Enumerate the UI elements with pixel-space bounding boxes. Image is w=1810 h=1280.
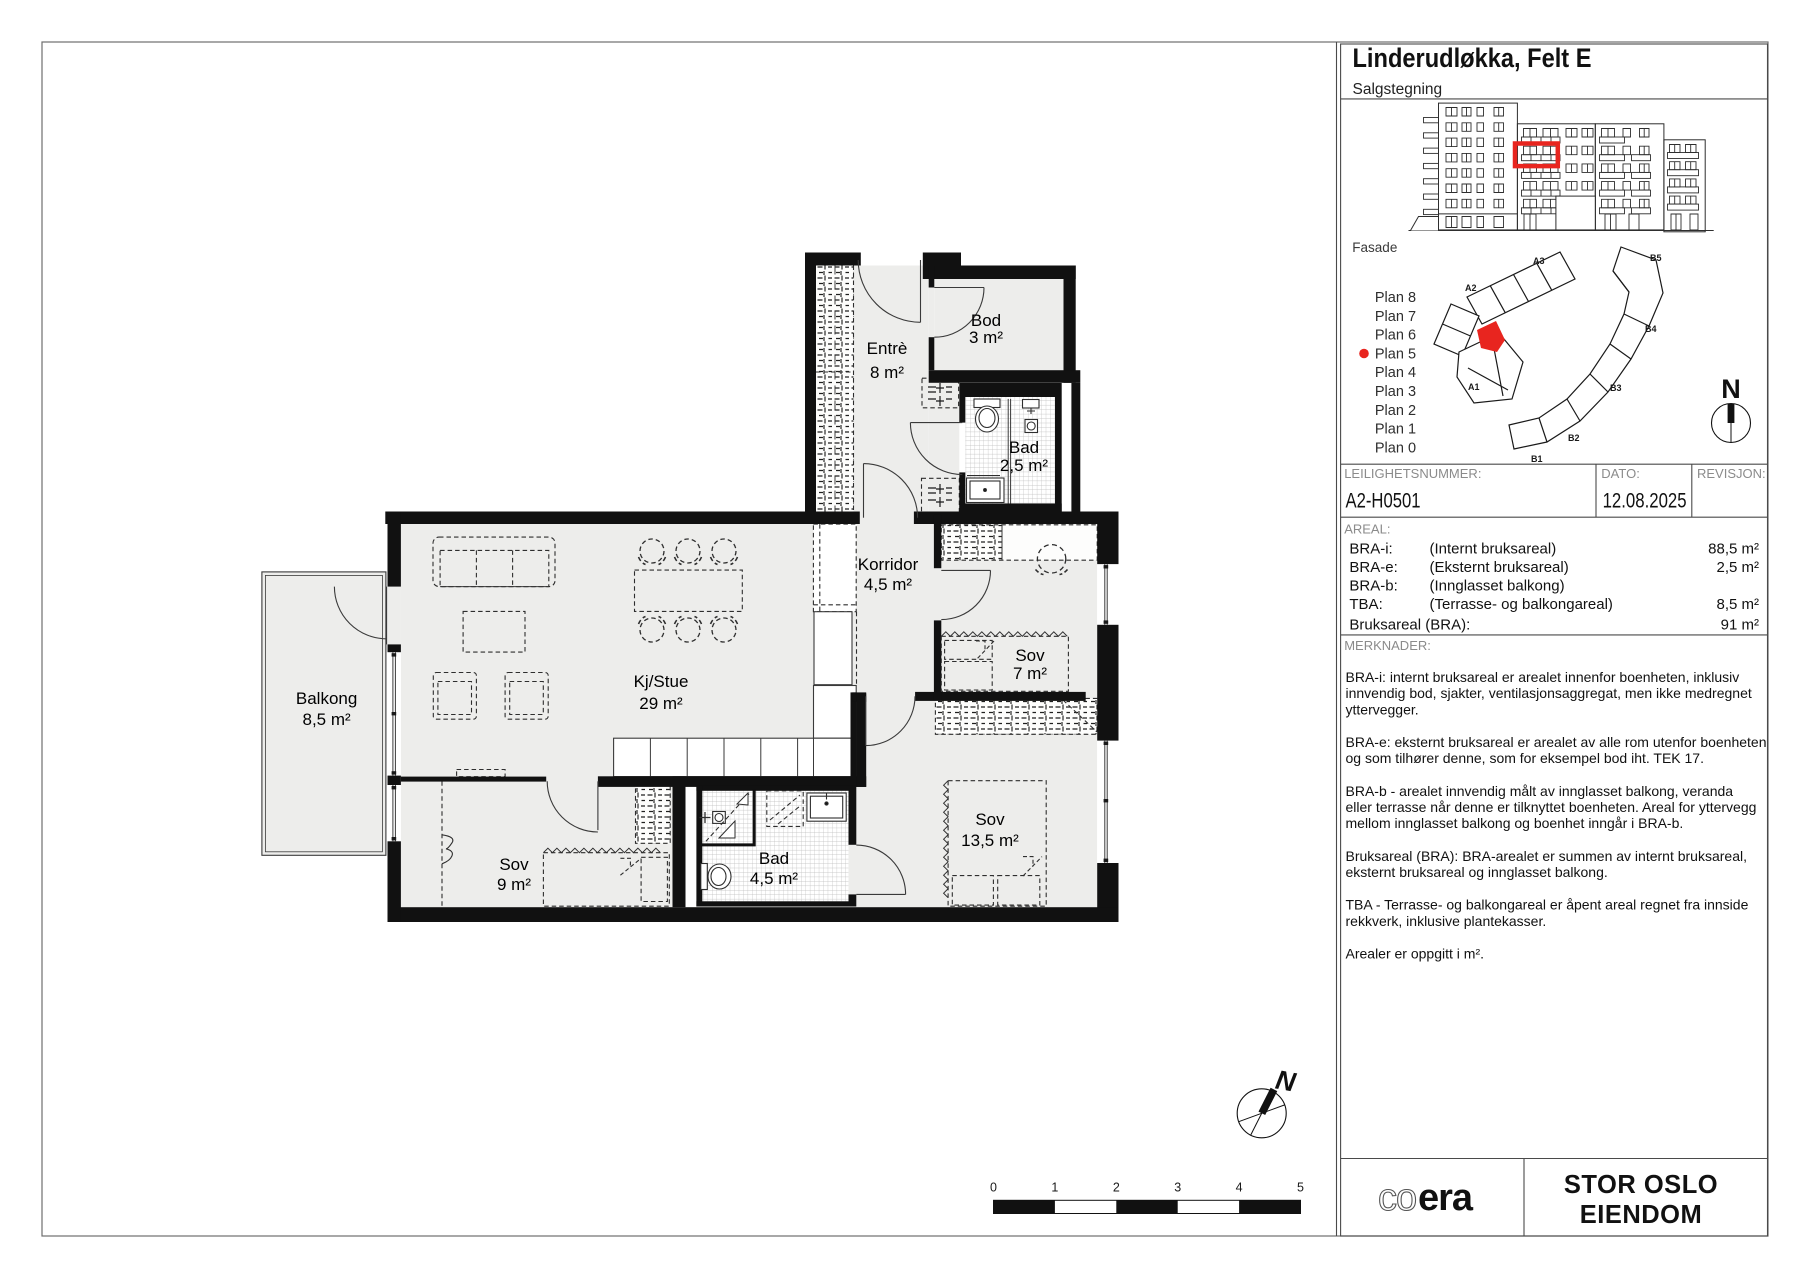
svg-text:Bad: Bad bbox=[759, 849, 789, 868]
svg-text:Plan 5: Plan 5 bbox=[1375, 346, 1416, 362]
svg-text:A2-H0501: A2-H0501 bbox=[1346, 490, 1421, 513]
svg-text:(Eksternt bruksareal): (Eksternt bruksareal) bbox=[1430, 559, 1569, 576]
svg-text:A2: A2 bbox=[1465, 283, 1477, 293]
svg-text:2,5 m²: 2,5 m² bbox=[1000, 456, 1049, 475]
svg-text:Fasade: Fasade bbox=[1352, 240, 1397, 255]
svg-text:A3: A3 bbox=[1533, 256, 1545, 266]
svg-text:1: 1 bbox=[1051, 1181, 1058, 1195]
svg-text:Bruksareal (BRA):: Bruksareal (BRA): bbox=[1349, 616, 1470, 633]
svg-text:BRA-i:: BRA-i: bbox=[1349, 541, 1392, 558]
svg-text:(Internt bruksareal): (Internt bruksareal) bbox=[1430, 541, 1557, 558]
svg-text:A1: A1 bbox=[1468, 382, 1480, 392]
svg-text:3 m²: 3 m² bbox=[969, 328, 1003, 347]
svg-text:REVISJON:: REVISJON: bbox=[1697, 466, 1766, 481]
svg-text:era: era bbox=[1418, 1177, 1474, 1219]
svg-text:B5: B5 bbox=[1650, 253, 1662, 263]
svg-text:N: N bbox=[1273, 1065, 1298, 1098]
svg-text:B3: B3 bbox=[1610, 383, 1622, 393]
svg-text:5: 5 bbox=[1297, 1181, 1304, 1195]
svg-text:Kj/Stue: Kj/Stue bbox=[634, 672, 689, 691]
svg-text:BRA-i: internt bruksareal er a: BRA-i: internt bruksareal er arealet inn… bbox=[1346, 669, 1740, 685]
svg-text:rekkverk, inklusive plantekass: rekkverk, inklusive plantekasser. bbox=[1346, 913, 1547, 929]
svg-text:Bruksareal (BRA): BRA-arealet: Bruksareal (BRA): BRA-arealet er summen … bbox=[1346, 848, 1747, 864]
svg-text:Plan 8: Plan 8 bbox=[1375, 290, 1416, 306]
svg-text:91 m²: 91 m² bbox=[1721, 616, 1759, 633]
svg-text:2,5 m²: 2,5 m² bbox=[1716, 559, 1759, 576]
svg-text:Sov: Sov bbox=[499, 855, 529, 874]
svg-text:TBA - Terrasse- og balkongarea: TBA - Terrasse- og balkongareal er åpent… bbox=[1346, 897, 1749, 913]
svg-text:Bad: Bad bbox=[1009, 438, 1039, 457]
svg-text:N: N bbox=[1721, 374, 1741, 404]
svg-text:3: 3 bbox=[1174, 1181, 1181, 1195]
svg-text:yttervegger.: yttervegger. bbox=[1346, 701, 1419, 717]
svg-text:Plan 4: Plan 4 bbox=[1375, 365, 1416, 381]
svg-text:BRA-e: eksternt bruksareal er: BRA-e: eksternt bruksareal er arealet av… bbox=[1346, 734, 1767, 750]
svg-text:8 m²: 8 m² bbox=[870, 363, 904, 382]
svg-text:B2: B2 bbox=[1568, 433, 1580, 443]
svg-text:mellom innglasset balkong og b: mellom innglasset balkong og boenhet inn… bbox=[1346, 815, 1684, 831]
svg-text:MERKNADER:: MERKNADER: bbox=[1344, 638, 1431, 653]
svg-text:Korridor: Korridor bbox=[858, 555, 919, 574]
svg-text:BRA-e:: BRA-e: bbox=[1349, 559, 1397, 576]
svg-text:BRA-b:: BRA-b: bbox=[1349, 578, 1397, 595]
svg-text:Plan 1: Plan 1 bbox=[1375, 422, 1416, 438]
svg-text:Sov: Sov bbox=[975, 810, 1005, 829]
svg-text:TBA:: TBA: bbox=[1349, 596, 1382, 613]
svg-text:Balkong: Balkong bbox=[296, 689, 357, 708]
svg-text:EIENDOM: EIENDOM bbox=[1580, 1201, 1703, 1229]
svg-text:Salgstegning: Salgstegning bbox=[1353, 81, 1443, 98]
svg-text:88,5 m²: 88,5 m² bbox=[1708, 541, 1759, 558]
svg-text:Sov: Sov bbox=[1015, 646, 1045, 665]
svg-text:8,5 m²: 8,5 m² bbox=[1716, 596, 1759, 613]
svg-text:(Innglasset balkong): (Innglasset balkong) bbox=[1430, 578, 1565, 595]
svg-text:eller terrasse når denne er ti: eller terrasse når denne er tilknyttet b… bbox=[1346, 799, 1757, 815]
svg-text:4,5 m²: 4,5 m² bbox=[750, 869, 799, 888]
svg-text:Plan 0: Plan 0 bbox=[1375, 440, 1416, 456]
svg-text:Plan 6: Plan 6 bbox=[1375, 328, 1416, 344]
svg-text:9 m²: 9 m² bbox=[497, 875, 531, 894]
svg-text:13,5 m²: 13,5 m² bbox=[961, 831, 1019, 850]
svg-text:8,5 m²: 8,5 m² bbox=[303, 710, 352, 729]
svg-text:co: co bbox=[1378, 1177, 1416, 1219]
svg-text:4,5 m²: 4,5 m² bbox=[864, 575, 913, 594]
svg-text:STOR OSLO: STOR OSLO bbox=[1564, 1171, 1718, 1199]
svg-text:7 m²: 7 m² bbox=[1013, 664, 1047, 683]
svg-text:Arealer er oppgitt i m².: Arealer er oppgitt i m². bbox=[1346, 945, 1485, 961]
svg-text:Entrè: Entrè bbox=[867, 339, 908, 358]
svg-text:Linderudløkka, Felt E: Linderudløkka, Felt E bbox=[1353, 43, 1592, 73]
svg-text:BRA-b - arealet innvendig målt: BRA-b - arealet innvendig målt av inngla… bbox=[1346, 783, 1734, 799]
svg-text:og som tilhører denne, som for: og som tilhører denne, som for eksempel … bbox=[1346, 750, 1704, 766]
svg-text:AREAL:: AREAL: bbox=[1344, 522, 1390, 537]
svg-text:(Terrasse- og balkongareal): (Terrasse- og balkongareal) bbox=[1430, 596, 1613, 613]
svg-text:Plan 2: Plan 2 bbox=[1375, 403, 1416, 419]
svg-text:2: 2 bbox=[1113, 1181, 1120, 1195]
svg-text:0: 0 bbox=[990, 1181, 997, 1195]
svg-text:12.08.2025: 12.08.2025 bbox=[1603, 490, 1687, 513]
svg-text:DATO:: DATO: bbox=[1601, 466, 1640, 481]
svg-text:eksternt bruksareal og innglas: eksternt bruksareal og innglasset balkon… bbox=[1346, 864, 1608, 880]
svg-text:29 m²: 29 m² bbox=[639, 694, 683, 713]
svg-text:LEILIGHETSNUMMER:: LEILIGHETSNUMMER: bbox=[1344, 466, 1481, 481]
svg-text:B1: B1 bbox=[1531, 454, 1543, 464]
svg-text:Plan 7: Plan 7 bbox=[1375, 309, 1416, 325]
svg-text:Plan 3: Plan 3 bbox=[1375, 384, 1416, 400]
svg-text:B4: B4 bbox=[1645, 324, 1657, 334]
svg-text:innvendig bod, sjakter, ventil: innvendig bod, sjakter, ventilasjonsaggr… bbox=[1346, 685, 1752, 701]
svg-text:4: 4 bbox=[1236, 1181, 1243, 1195]
